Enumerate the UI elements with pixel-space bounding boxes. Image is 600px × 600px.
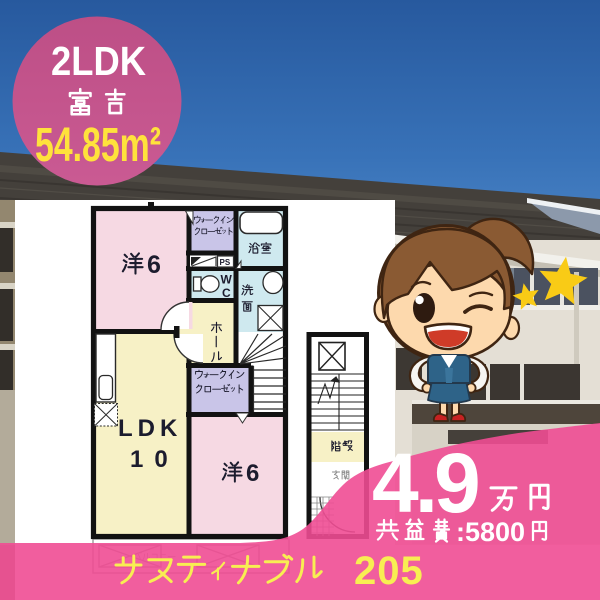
svg-text:54.85m²: 54.85m² [35,119,161,172]
svg-text:W: W [221,273,233,287]
svg-text:10: 10 [130,446,179,473]
svg-text:6: 6 [147,251,161,279]
svg-text:6: 6 [246,460,259,487]
svg-text:4.9: 4.9 [372,436,478,530]
svg-text::5800: :5800 [456,517,525,547]
svg-text:2LDK: 2LDK [51,38,146,84]
svg-text:C: C [222,286,231,300]
svg-text:PS: PS [220,258,231,267]
svg-text:LDK: LDK [118,415,182,442]
svg-text:205: 205 [354,549,424,593]
